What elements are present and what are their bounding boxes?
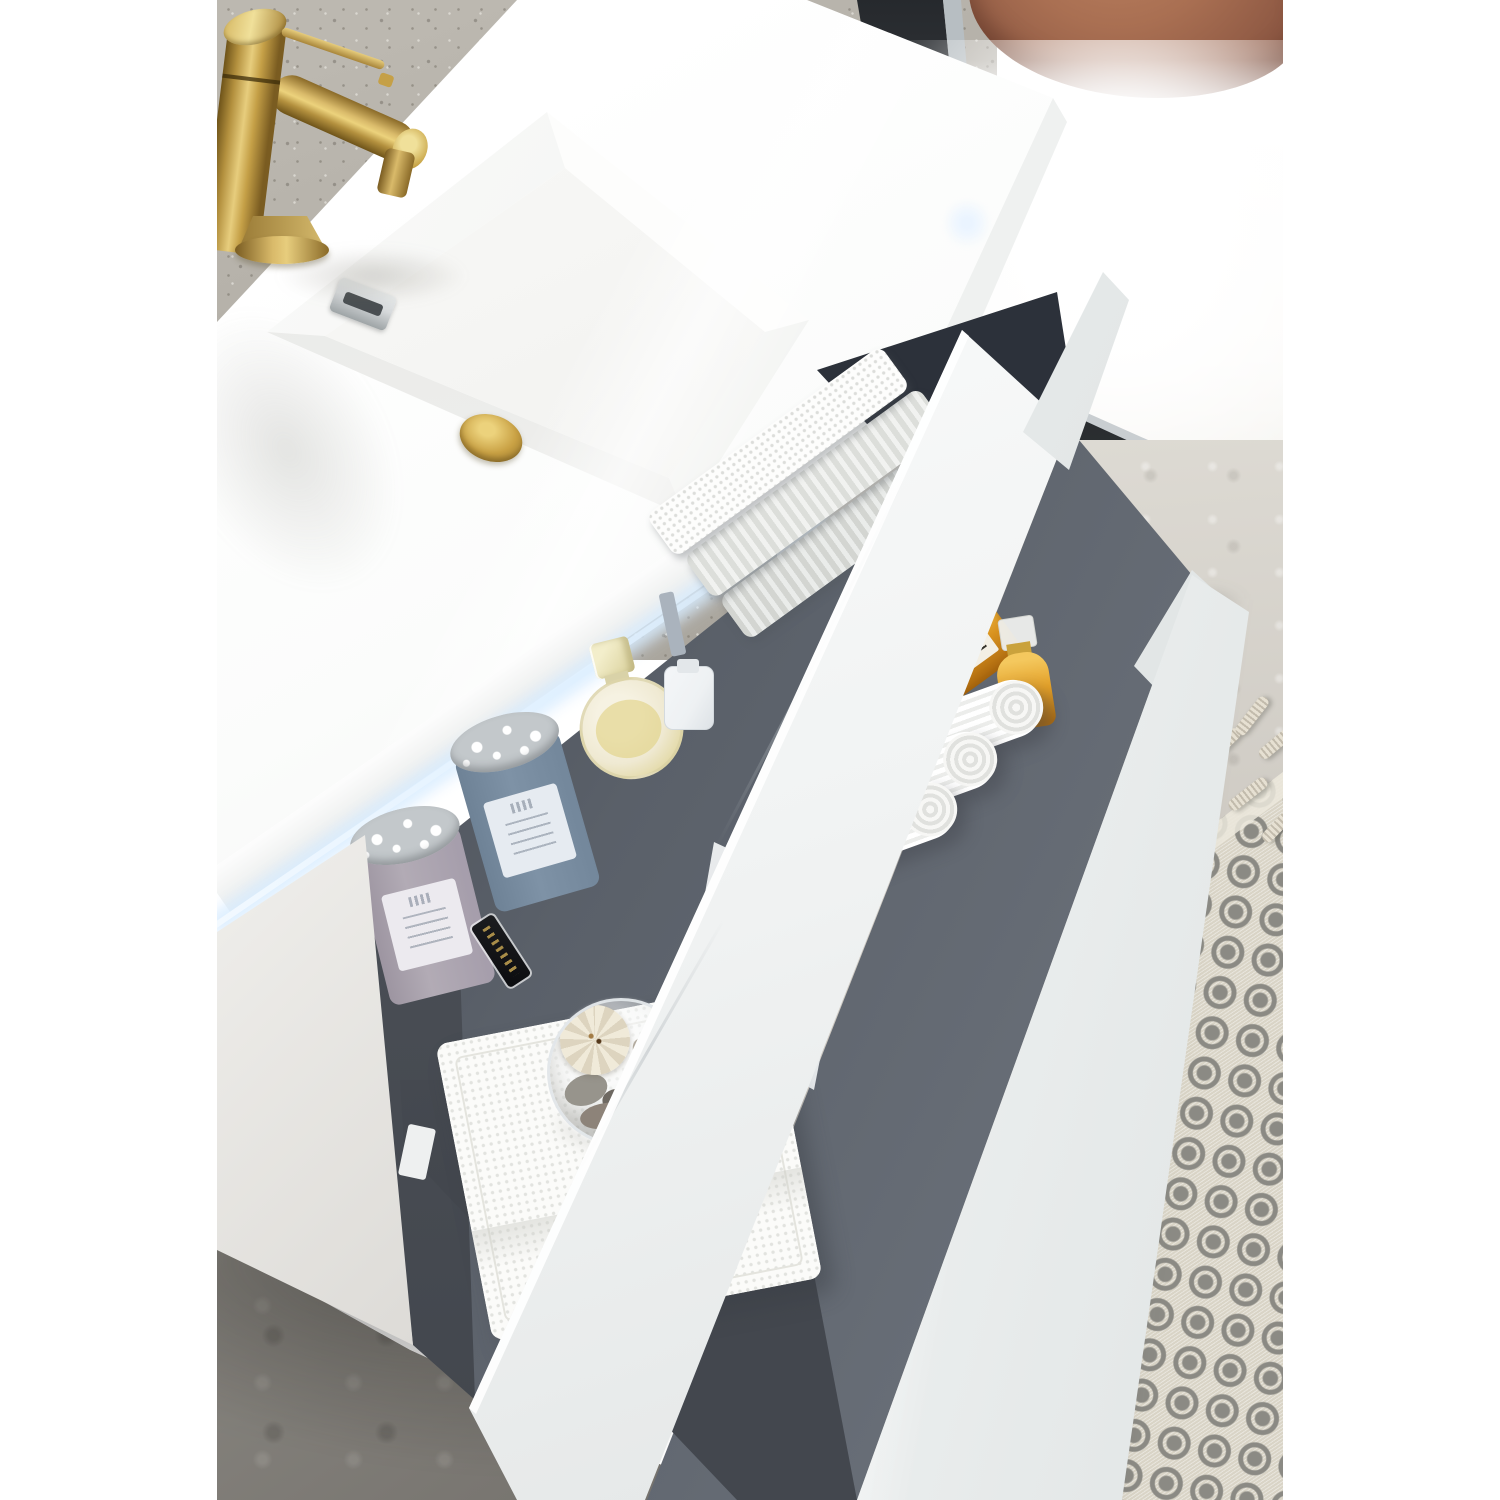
candle-label-text bbox=[403, 907, 454, 951]
flower-center bbox=[582, 1027, 608, 1053]
vanity-photo bbox=[217, 0, 1283, 1500]
led-corner-glow bbox=[945, 196, 989, 250]
dried-flower bbox=[560, 1005, 630, 1075]
faucet-base-flange bbox=[235, 236, 329, 264]
mini-bottle-cap bbox=[677, 659, 699, 673]
faucet-seam bbox=[222, 74, 280, 85]
mini-glass-bottle bbox=[664, 666, 714, 730]
candle-label-logo bbox=[510, 798, 534, 814]
candle-label-text bbox=[505, 812, 557, 857]
candle-label-logo bbox=[408, 892, 432, 907]
screenshot-page bbox=[0, 0, 1500, 1500]
